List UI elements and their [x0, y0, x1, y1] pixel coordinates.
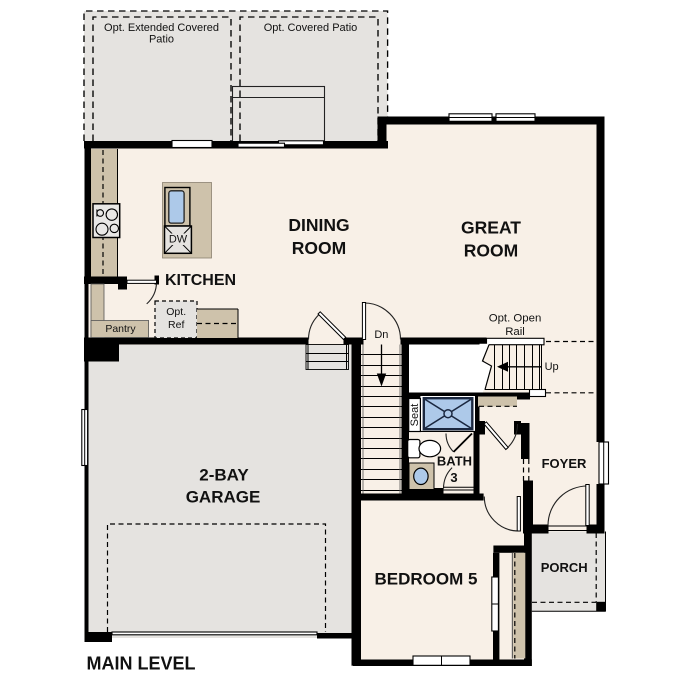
- svg-text:BATH: BATH: [437, 454, 472, 469]
- svg-text:ROOM: ROOM: [292, 238, 346, 258]
- svg-text:DINING: DINING: [288, 215, 349, 235]
- svg-text:BEDROOM 5: BEDROOM 5: [375, 570, 478, 589]
- svg-text:Ref: Ref: [168, 319, 184, 331]
- svg-text:MAIN LEVEL: MAIN LEVEL: [86, 654, 195, 674]
- svg-text:Seat: Seat: [409, 404, 421, 427]
- svg-text:2-BAY: 2-BAY: [199, 466, 249, 485]
- svg-text:ROOM: ROOM: [464, 241, 518, 261]
- svg-text:Patio: Patio: [149, 34, 174, 46]
- svg-text:GREAT: GREAT: [461, 218, 521, 238]
- svg-text:Opt. Covered Patio: Opt. Covered Patio: [264, 22, 358, 34]
- svg-text:Opt. Extended Covered: Opt. Extended Covered: [104, 22, 219, 34]
- svg-text:Rail: Rail: [505, 326, 525, 338]
- svg-text:Dn: Dn: [374, 329, 388, 341]
- svg-text:DW: DW: [169, 234, 188, 246]
- svg-text:Pantry: Pantry: [105, 323, 136, 335]
- svg-text:Up: Up: [545, 361, 559, 373]
- svg-text:FOYER: FOYER: [542, 456, 587, 471]
- svg-text:3: 3: [450, 470, 457, 485]
- svg-text:GARAGE: GARAGE: [186, 488, 261, 507]
- svg-text:KITCHEN: KITCHEN: [165, 272, 236, 289]
- svg-text:Opt. Open: Opt. Open: [489, 313, 542, 325]
- svg-text:Opt.: Opt.: [166, 306, 186, 318]
- svg-text:PORCH: PORCH: [541, 560, 588, 575]
